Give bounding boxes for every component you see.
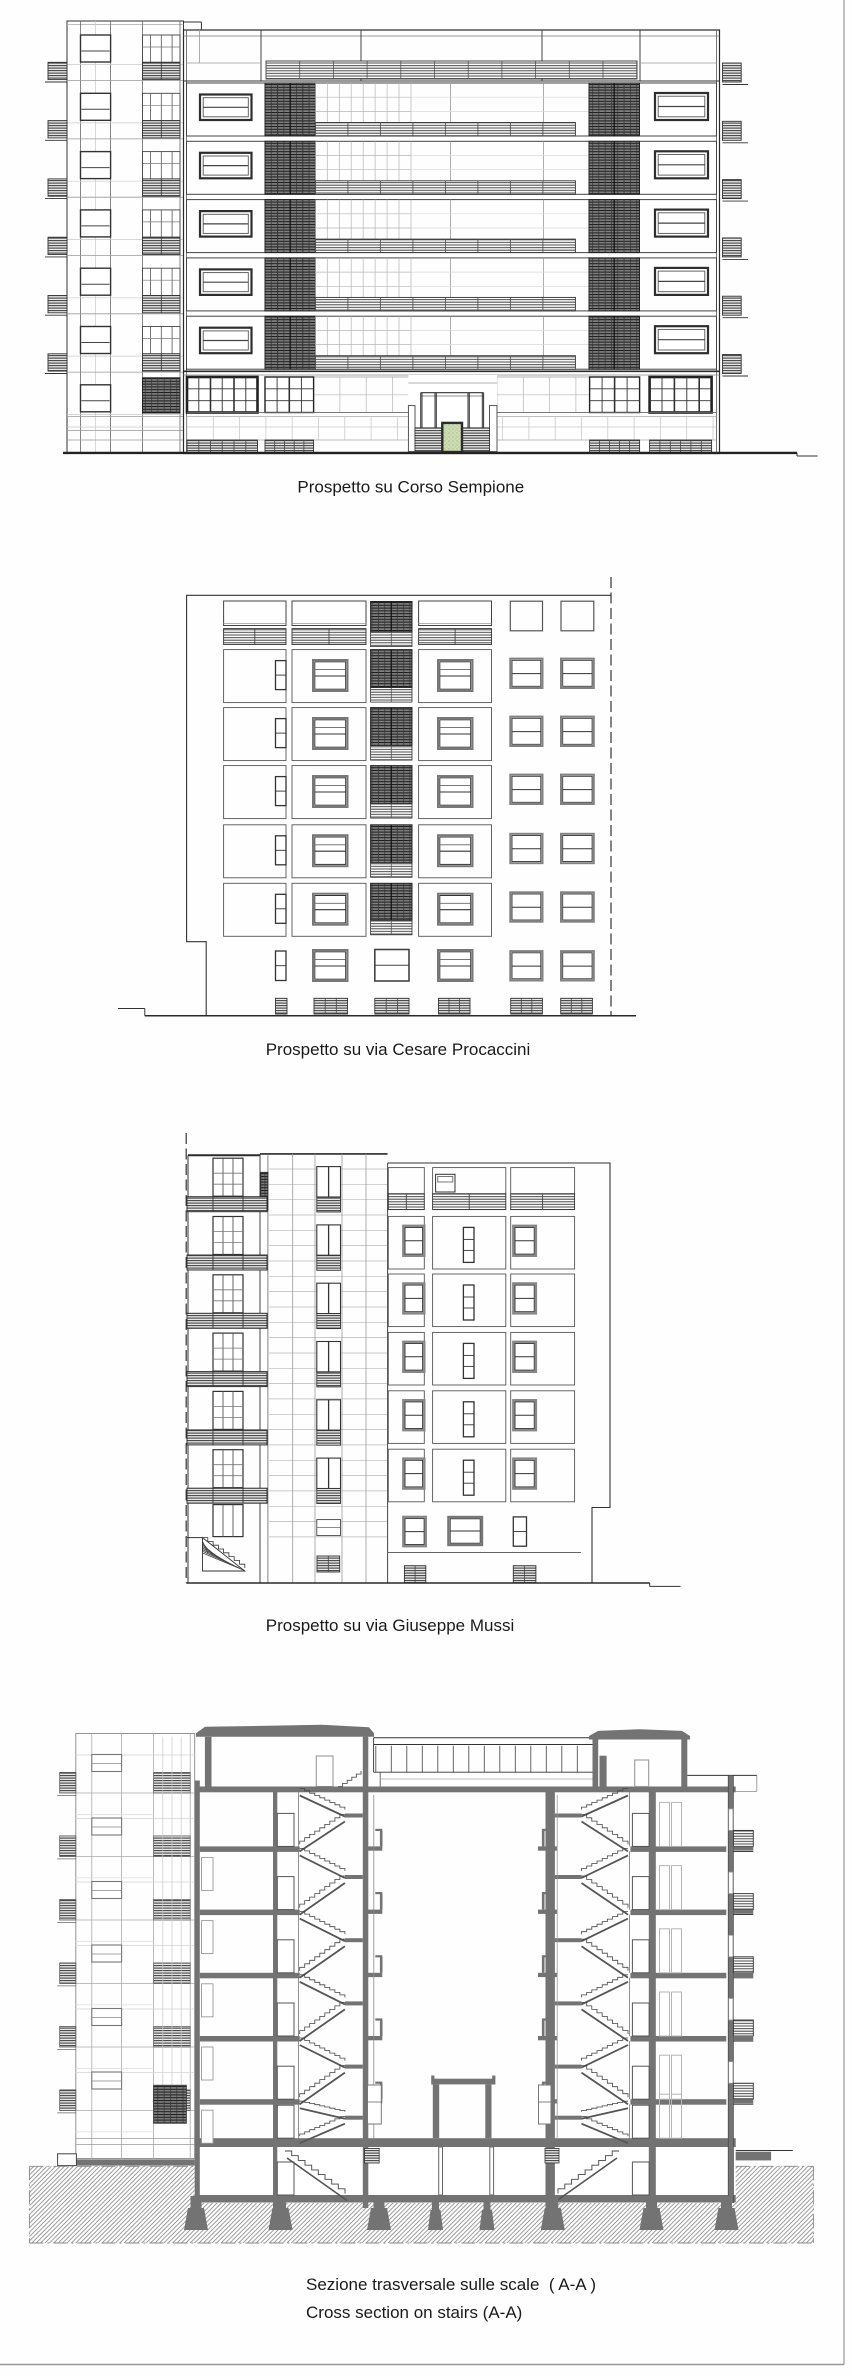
- svg-text:Prospetto su via Cesare Procac: Prospetto su via Cesare Procaccini: [266, 1040, 531, 1059]
- svg-text:Prospetto su via Giuseppe Muss: Prospetto su via Giuseppe Mussi: [266, 1616, 515, 1635]
- svg-text:Sezione trasversale sulle scal: Sezione trasversale sulle scale ( A-A ): [306, 2275, 596, 2294]
- svg-text:Prospetto su Corso Sempione: Prospetto su Corso Sempione: [297, 478, 524, 497]
- svg-text:Cross section on stairs (A-A): Cross section on stairs (A-A): [306, 2303, 522, 2322]
